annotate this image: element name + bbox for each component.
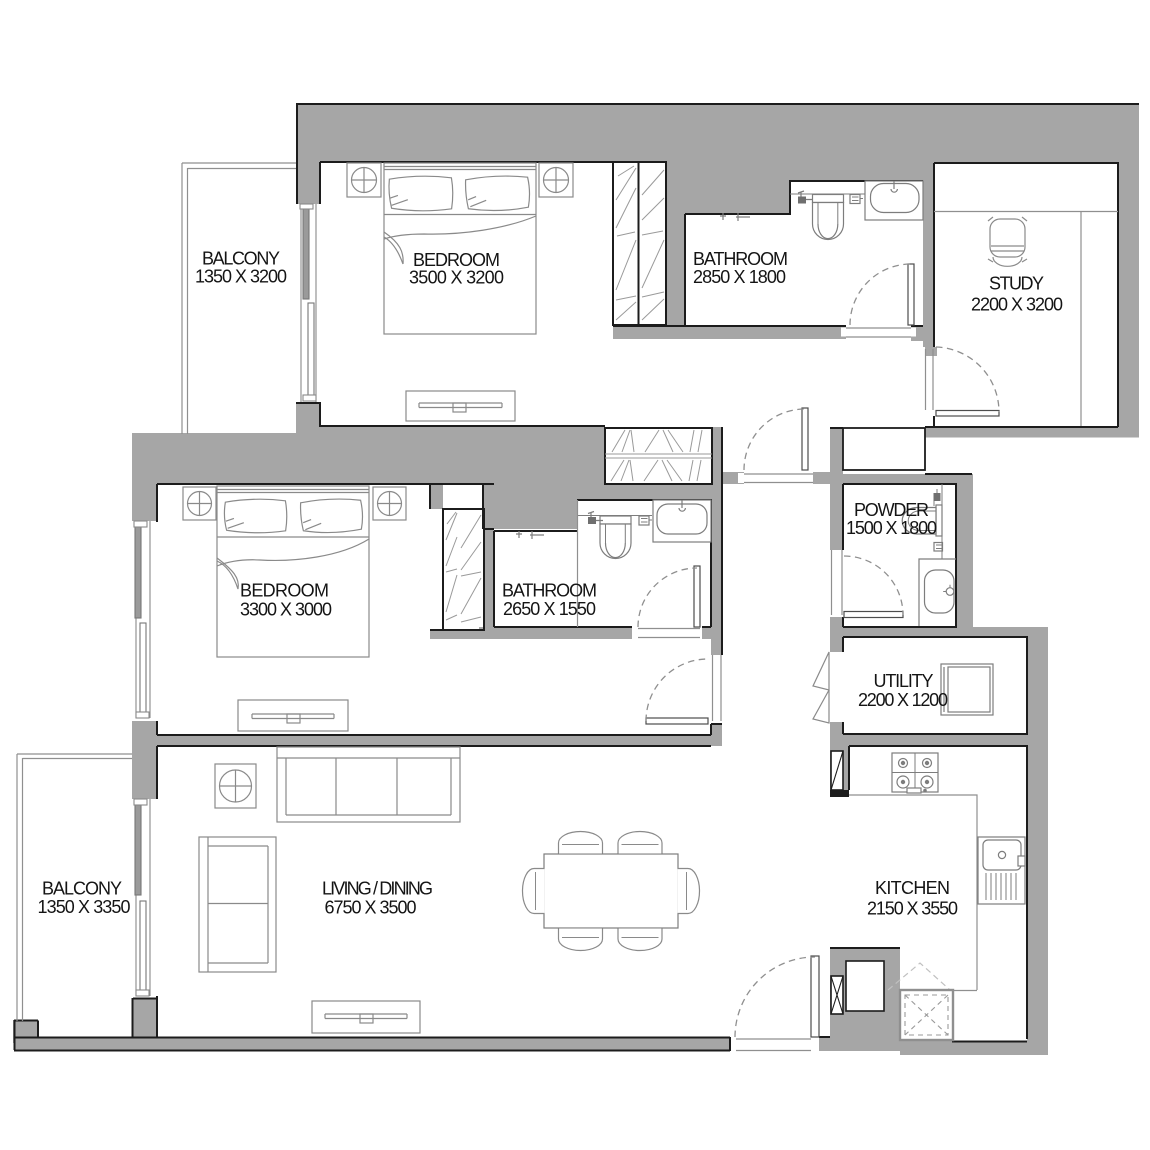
svg-text:LIVING / DINING: LIVING / DINING <box>322 879 433 899</box>
svg-text:3300 X 3000: 3300 X 3000 <box>240 600 332 620</box>
svg-text:1350 X 3350: 1350 X 3350 <box>38 897 131 917</box>
svg-text:BATHROOM: BATHROOM <box>502 581 597 601</box>
svg-text:2850 X 1800: 2850 X 1800 <box>693 267 786 287</box>
svg-text:1350 X 3200: 1350 X 3200 <box>195 267 287 287</box>
svg-text:2650 X 1550: 2650 X 1550 <box>503 599 596 619</box>
svg-text:2200 X 3200: 2200 X 3200 <box>971 295 1063 315</box>
svg-text:6750 X 3500: 6750 X 3500 <box>325 898 417 918</box>
svg-text:BALCONY: BALCONY <box>42 879 122 899</box>
svg-text:UTILITY: UTILITY <box>874 671 934 691</box>
svg-text:POWDER: POWDER <box>854 500 929 520</box>
svg-text:BALCONY: BALCONY <box>202 249 280 269</box>
svg-text:STUDY: STUDY <box>989 274 1044 294</box>
svg-text:BATHROOM: BATHROOM <box>693 249 788 269</box>
svg-text:2200 X 1200: 2200 X 1200 <box>858 690 948 710</box>
svg-text:3500 X 3200: 3500 X 3200 <box>409 268 504 288</box>
svg-text:BEDROOM: BEDROOM <box>240 581 329 601</box>
svg-text:KITCHEN: KITCHEN <box>875 878 950 898</box>
svg-text:2150 X 3550: 2150 X 3550 <box>867 899 958 919</box>
svg-text:1500 X 1800: 1500 X 1800 <box>846 518 937 538</box>
